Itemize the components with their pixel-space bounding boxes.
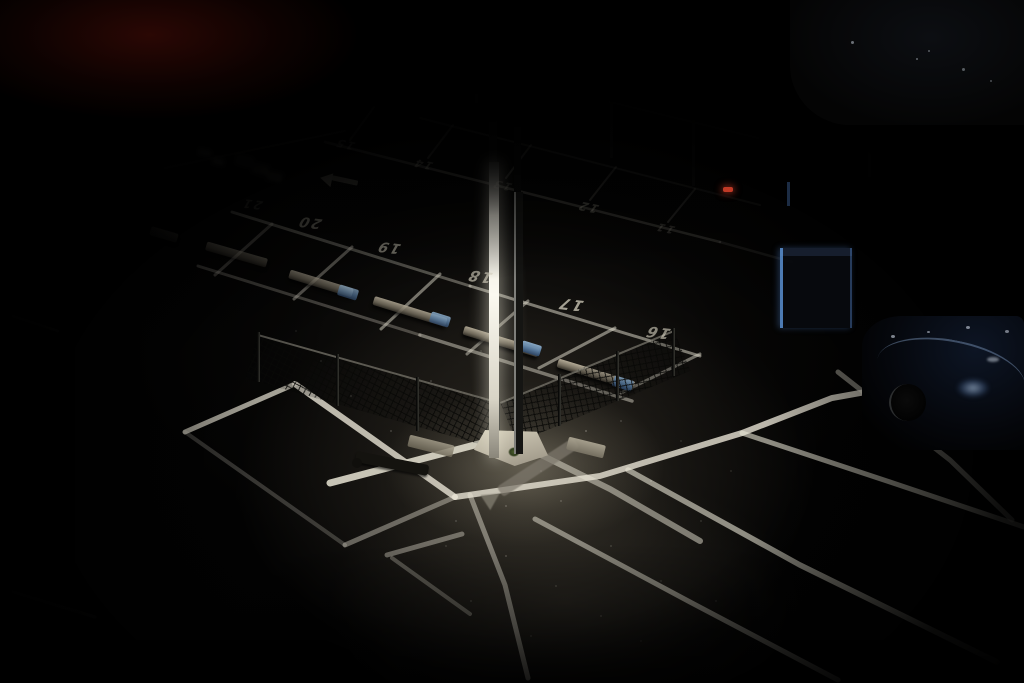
car-glint: [916, 58, 918, 60]
fence-post: [416, 377, 419, 431]
car-roof-glint: [927, 331, 930, 333]
lamp-post: [489, 162, 499, 458]
car-roof-glint: [1005, 330, 1009, 333]
tail-light: [723, 187, 733, 192]
background-post: [610, 18, 613, 158]
wheel-stop-knob: [352, 458, 362, 468]
lamp-post-upper-silhouette: [489, 0, 497, 166]
car-window-glint: [987, 357, 999, 362]
car-glint: [851, 41, 854, 44]
blue-panel: [780, 248, 852, 328]
car-glint: [928, 50, 930, 52]
distant-car: [790, 0, 1024, 125]
car-door-reflection: [956, 378, 990, 398]
lamp-post-secondary: [514, 192, 523, 454]
fence-post: [672, 328, 675, 376]
fence-post: [336, 354, 339, 406]
fence-post: [616, 351, 619, 401]
car-roof-glint: [966, 326, 970, 329]
fence-post: [257, 332, 260, 382]
background-post: [475, 8, 478, 103]
blue-panel-sliver: [787, 182, 790, 206]
car-glint: [962, 68, 965, 71]
lamp-post-upper-silhouette: [514, 55, 521, 195]
background-post: [692, 58, 695, 186]
night-parking-lot-photo: 21 20 19 18 17 16 15 14 13 12 11 3: [0, 0, 1024, 683]
car-roof-glint: [891, 335, 895, 338]
fence-post: [558, 374, 561, 426]
car-glint: [990, 80, 992, 82]
pipe-rail: [544, 41, 575, 63]
car-wheel: [889, 384, 926, 421]
